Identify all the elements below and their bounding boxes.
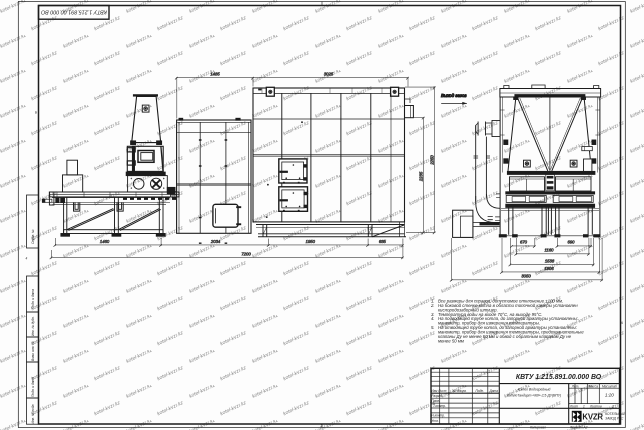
svg-text:КотлоТандарт «КВ»-2,5-ДУ(ВПУ): КотлоТандарт «КВ»-2,5-ДУ(ВПУ) bbox=[507, 393, 561, 397]
svg-text:2034: 2034 bbox=[210, 239, 221, 244]
svg-text:КВТУ 1.215.891.00.000 ВО: КВТУ 1.215.891.00.000 ВО bbox=[40, 9, 107, 15]
svg-text:Разраб.: Разраб. bbox=[431, 394, 443, 398]
svg-text:Справ. №: Справ. № bbox=[31, 229, 35, 244]
svg-text:KVZR: KVZR bbox=[582, 412, 603, 421]
svg-text:Листов: Листов bbox=[589, 405, 602, 409]
svg-text:2.: 2. bbox=[430, 303, 435, 308]
svg-text:3050: 3050 bbox=[521, 274, 531, 279]
svg-text:Пров.: Пров. bbox=[431, 399, 440, 403]
svg-text:Подп.: Подп. bbox=[476, 389, 485, 393]
svg-text:Копировал: Копировал bbox=[530, 425, 546, 429]
svg-text:2: 2 bbox=[320, 424, 323, 428]
svg-text:ЗАВОД РУС: ЗАВОД РУС bbox=[605, 417, 624, 421]
svg-text:Выход газов: Выход газов bbox=[441, 93, 467, 98]
svg-text:Формат А2: Формат А2 bbox=[570, 425, 588, 429]
svg-text:Утв.: Утв. bbox=[431, 419, 438, 423]
svg-text:2235: 2235 bbox=[418, 171, 423, 182]
svg-text:Лит.: Лит. bbox=[571, 384, 580, 388]
svg-text:1460: 1460 bbox=[100, 239, 110, 244]
svg-text:менее 50 мм: менее 50 мм bbox=[438, 339, 464, 344]
svg-text:Б: Б bbox=[35, 111, 37, 115]
svg-text:№ докум.: № докум. bbox=[453, 389, 467, 393]
svg-text:1:20: 1:20 bbox=[605, 393, 614, 398]
svg-text:Дата: Дата bbox=[489, 389, 499, 393]
svg-text:1538: 1538 bbox=[545, 258, 555, 263]
svg-text:Изм Лист: Изм Лист bbox=[431, 389, 446, 393]
svg-text:3025: 3025 bbox=[324, 71, 334, 76]
svg-text:670: 670 bbox=[520, 240, 528, 245]
svg-text:Подп. и дата: Подп. и дата bbox=[31, 289, 35, 309]
svg-text:5.: 5. bbox=[431, 325, 435, 330]
svg-text:Масса: Масса bbox=[589, 384, 599, 388]
svg-text:4: 4 bbox=[26, 257, 28, 261]
svg-text:Инв. № дубл.: Инв. № дубл. bbox=[31, 316, 35, 336]
svg-text:1950: 1950 bbox=[306, 239, 316, 244]
svg-text:Н.контр.: Н.контр. bbox=[431, 414, 445, 418]
svg-text:2: 2 bbox=[611, 405, 614, 409]
svg-text:Подп. и дата: Подп. и дата bbox=[31, 377, 35, 397]
svg-text:КВТУ 1.215.891.00.000 ВО: КВТУ 1.215.891.00.000 ВО bbox=[516, 374, 602, 381]
svg-text:1160: 1160 bbox=[544, 248, 554, 253]
svg-text:Инв. № подл.: Инв. № подл. bbox=[31, 404, 35, 424]
svg-text:4.: 4. bbox=[431, 316, 435, 321]
svg-text:Взам. инв. №: Взам. инв. № bbox=[31, 341, 35, 361]
svg-text:1: 1 bbox=[583, 405, 585, 409]
svg-text:Котел Водогрейный: Котел Водогрейный bbox=[518, 387, 551, 391]
svg-text:А: А bbox=[620, 321, 623, 325]
svg-text:Масштаб: Масштаб bbox=[602, 384, 617, 388]
svg-text:685: 685 bbox=[379, 239, 387, 244]
svg-text:7200: 7200 bbox=[241, 251, 251, 256]
svg-text:Лист: Лист bbox=[569, 405, 579, 409]
svg-text:2250: 2250 bbox=[429, 155, 434, 166]
svg-text:КОТЕЛЬНЫЙ: КОТЕЛЬНЫЙ bbox=[605, 412, 626, 416]
svg-text:690: 690 bbox=[568, 240, 576, 245]
svg-text:1485: 1485 bbox=[210, 71, 220, 76]
svg-text:Т.контр.: Т.контр. bbox=[433, 404, 446, 408]
svg-text:1906: 1906 bbox=[544, 266, 554, 271]
